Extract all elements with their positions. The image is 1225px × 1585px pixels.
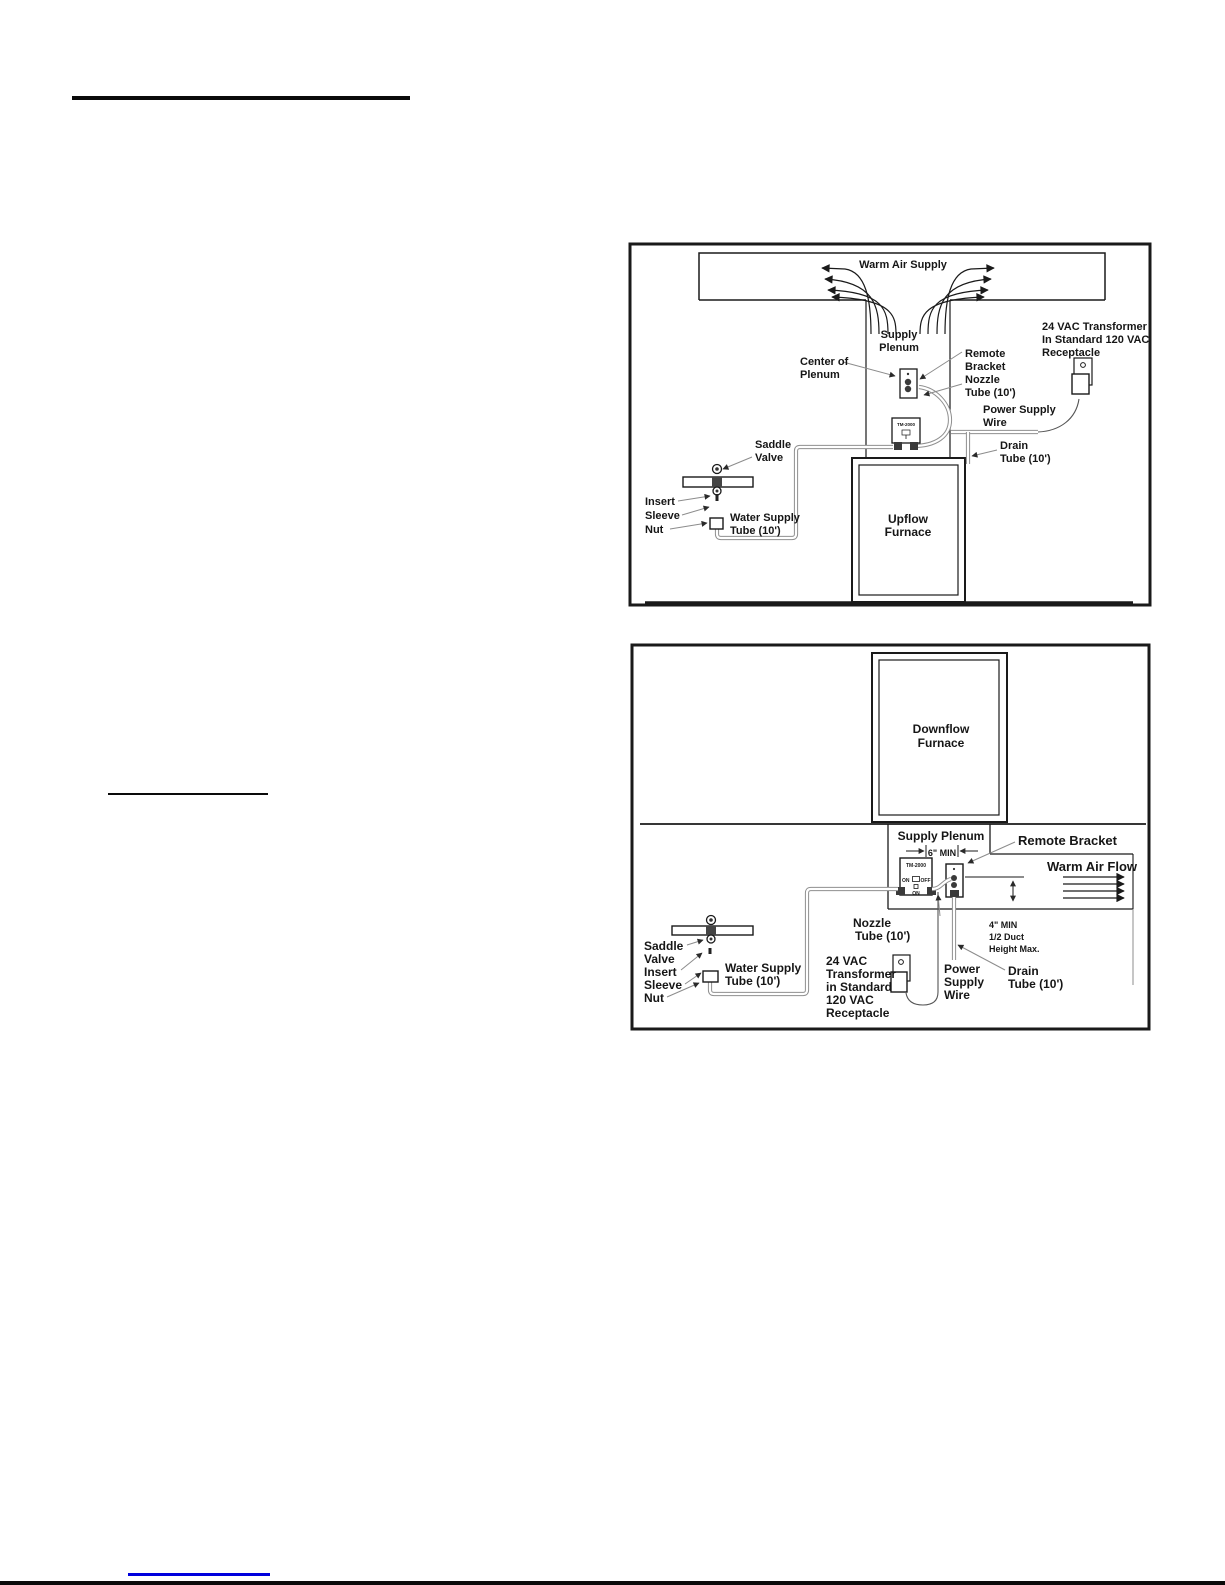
footer-rule [0, 1581, 1225, 1585]
nut-label: Nut [644, 991, 664, 1005]
nozzle-tube-label-1: Nozzle [965, 374, 1000, 386]
heading-underline [72, 96, 410, 100]
transformer-label-1: 24 VAC Transformer [1042, 321, 1148, 333]
supply-plenum-label-2: Plenum [879, 342, 919, 354]
warm-air-flow-label: Warm Air Flow [1047, 859, 1138, 874]
center-of-plenum-label-2: Plenum [800, 369, 840, 381]
page-canvas: TM-2000 [0, 0, 1225, 1585]
sleeve-label: Sleeve [645, 510, 680, 522]
insert-label: Insert [644, 965, 677, 979]
nozzle-tube-label-2: Tube (10') [965, 387, 1016, 399]
section-underline [108, 793, 268, 795]
nut-fitting [703, 971, 718, 982]
four-min-label-1: 4" MIN [989, 920, 1017, 930]
warm-air-supply-label: Warm Air Supply [859, 259, 948, 271]
water-supply-tube-label-2: Tube (10') [725, 974, 780, 988]
unit-model-label: TM-2000 [906, 863, 926, 869]
remote-bracket-label-2: Bracket [965, 361, 1006, 373]
four-min-label-2: 1/2 Duct [989, 932, 1024, 942]
power-supply-wire-label-1: Power Supply [983, 404, 1057, 416]
upflow-furnace-label-1: Upflow [888, 512, 929, 526]
remote-bracket [900, 369, 917, 398]
unit-on-label: ON [902, 878, 910, 884]
drain-tube-label-2: Tube (10') [1000, 453, 1051, 465]
transformer-label-2: Transformer [826, 967, 896, 981]
insert-fitting [709, 948, 712, 954]
sleeve-label: Sleeve [644, 978, 682, 992]
center-of-plenum-label-1: Center of [800, 356, 849, 368]
transformer-label-1: 24 VAC [826, 954, 867, 968]
power-supply-wire-label-2: Wire [983, 417, 1007, 429]
power-supply-wire-label-1: Power [944, 962, 980, 976]
six-min-label: 6" MIN [928, 848, 956, 858]
nut-label: Nut [645, 524, 664, 536]
water-supply-tube-label-1: Water Supply [725, 961, 802, 975]
supply-plenum-label-1: Supply [881, 329, 919, 341]
power-supply-wire-label-2: Supply [944, 975, 984, 989]
transformer-label-3: Receptacle [1042, 347, 1100, 359]
humidifier-unit: TM-2000 ON OFF ON [896, 858, 936, 897]
transformer-label-3: in Standard [826, 980, 892, 994]
upflow-furnace-label-2: Furnace [885, 525, 932, 539]
four-min-label-3: Height Max. [989, 944, 1040, 954]
transformer-label-5: Receptacle [826, 1006, 890, 1020]
supply-plenum-label: Supply Plenum [898, 829, 985, 843]
saddle-label: Saddle [644, 939, 684, 953]
nozzle-tube-label-2: Tube (10') [855, 929, 910, 943]
saddle-valve-label-2: Valve [755, 452, 783, 464]
transformer-label-2: In Standard 120 VAC [1042, 334, 1149, 346]
drain-tube-label-1: Drain [1000, 440, 1028, 452]
remote-bracket-label: Remote Bracket [1018, 833, 1118, 848]
nozzle-tube-label-1: Nozzle [853, 916, 891, 930]
unit-on-bottom-label: ON [912, 891, 920, 897]
drain-tube-label-2: Tube (10') [1008, 977, 1063, 991]
footer-link-underline[interactable] [128, 1573, 270, 1576]
figure-upflow-installation: TM-2000 [630, 244, 1150, 605]
unit-off-label: OFF [921, 878, 931, 884]
saddle-valve-label-1: Saddle [755, 439, 791, 451]
downflow-furnace-label-1: Downflow [913, 722, 970, 736]
insert-label: Insert [645, 496, 675, 508]
insert-fitting [716, 494, 719, 501]
drain-tube-label-1: Drain [1008, 964, 1039, 978]
valve-label: Valve [644, 952, 675, 966]
receptacle-transformer [1072, 358, 1092, 394]
water-supply-tube-label-2: Tube (10') [730, 525, 781, 537]
downflow-furnace-label-2: Furnace [918, 736, 965, 750]
nut-fitting [710, 518, 723, 529]
unit-model-label: TM-2000 [897, 422, 916, 427]
power-supply-wire-label-3: Wire [944, 988, 970, 1002]
document-page: TM-2000 [0, 0, 1225, 1585]
figure-downflow-installation: 6" MIN TM-2000 ON OFF ON [632, 645, 1149, 1029]
transformer-label-4: 120 VAC [826, 993, 874, 1007]
remote-bracket-label-1: Remote [965, 348, 1005, 360]
water-supply-tube-label-1: Water Supply [730, 512, 801, 524]
